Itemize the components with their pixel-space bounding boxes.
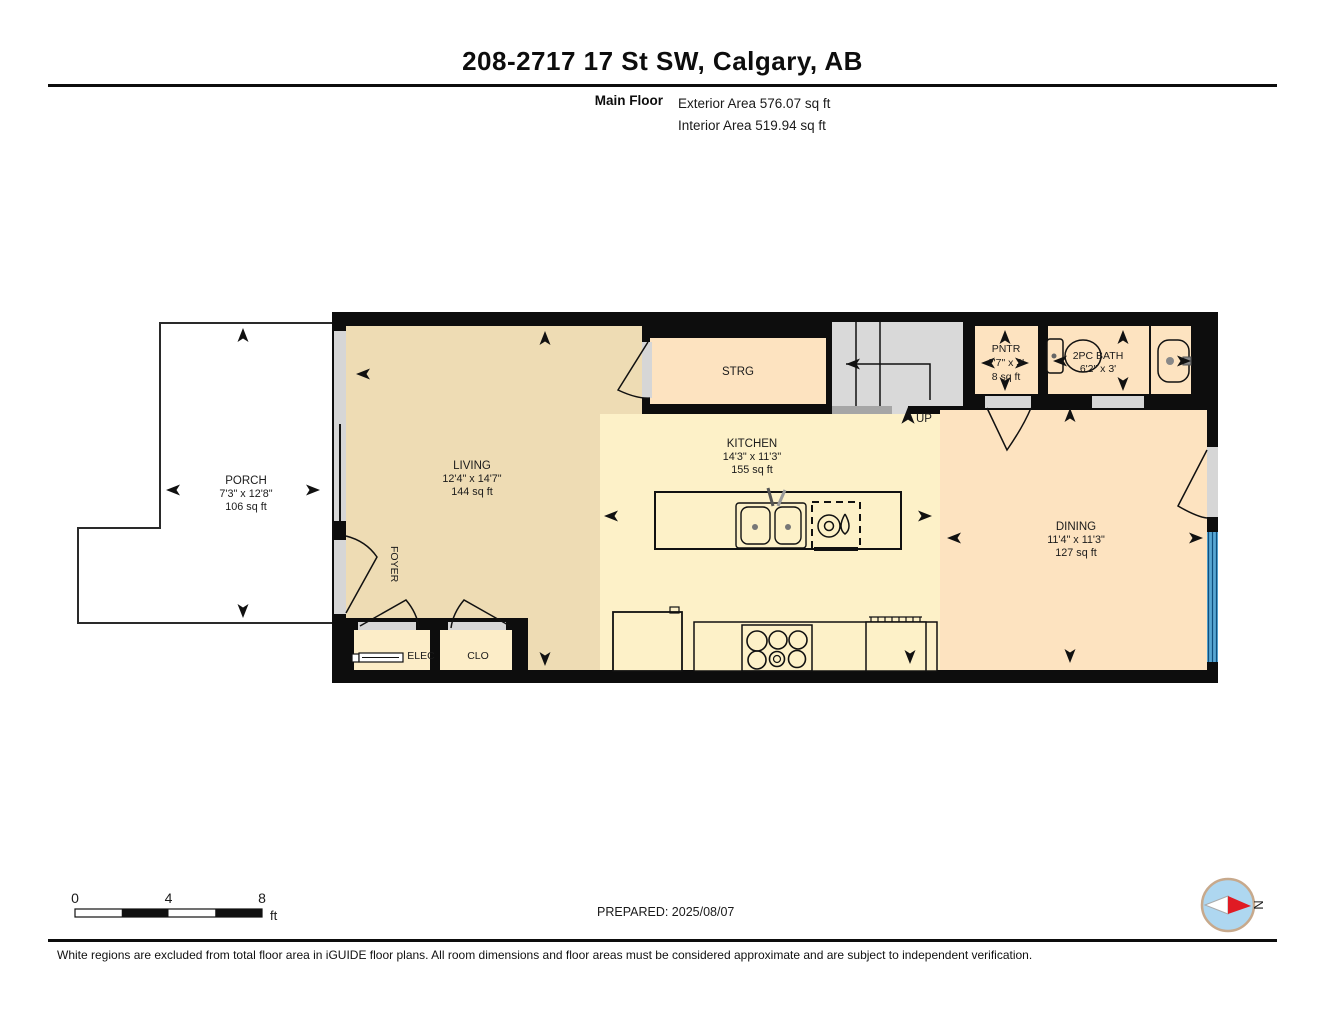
footer-divider bbox=[48, 939, 1277, 942]
pntr-label: PNTR bbox=[992, 343, 1021, 355]
living-dims: 12'4" x 14'7" bbox=[442, 473, 501, 485]
bath-dims: 6'2" x 3' bbox=[1080, 363, 1116, 375]
strg-label: STRG bbox=[722, 366, 754, 378]
porch-label: PORCH bbox=[225, 475, 267, 487]
porch-outline bbox=[78, 323, 334, 623]
dining-area: 127 sq ft bbox=[1055, 547, 1096, 559]
living-area: 144 sq ft bbox=[451, 486, 492, 498]
kitchen-area: 155 sq ft bbox=[731, 464, 772, 476]
foyer-label: FOYER bbox=[388, 546, 400, 583]
dining-label: DINING bbox=[1056, 521, 1096, 533]
scale-bar: 0 4 8 ft bbox=[71, 890, 278, 923]
wall-oven-icon bbox=[866, 617, 926, 671]
electrical-panel-icon bbox=[352, 653, 403, 662]
disclaimer-text: White regions are excluded from total fl… bbox=[57, 948, 1032, 962]
compass-north-label: N bbox=[1251, 900, 1266, 909]
stairs-up-label: UP bbox=[916, 413, 932, 425]
living-label: LIVING bbox=[453, 460, 491, 472]
kitchen-island bbox=[655, 488, 901, 551]
pntr-area: 8 sq ft bbox=[992, 371, 1021, 383]
floor-plan-svg: PORCH 7'3" x 12'8" 106 sq ft LIVING 12'4… bbox=[0, 0, 1325, 1024]
fridge-icon bbox=[613, 607, 682, 671]
elec-label: ELEC bbox=[407, 650, 435, 662]
dining-window bbox=[1207, 532, 1218, 662]
compass-icon: N bbox=[1202, 879, 1266, 931]
dining-dims: 11'4" x 11'3" bbox=[1047, 534, 1105, 546]
porch-dims: 7'3" x 12'8" bbox=[219, 488, 272, 500]
scale-tick-4: 4 bbox=[165, 890, 173, 906]
floor-plan-page: 208-2717 17 St SW, Calgary, AB Main Floo… bbox=[0, 0, 1325, 1024]
kitchen-dims: 14'3" x 11'3" bbox=[723, 451, 782, 463]
prepared-date: PREPARED: 2025/08/07 bbox=[597, 905, 734, 919]
kitchen-label: KITCHEN bbox=[727, 438, 777, 450]
porch-area: 106 sq ft bbox=[225, 501, 266, 513]
scale-unit: ft bbox=[270, 908, 278, 923]
pntr-dims: 2'7" x 3' bbox=[988, 357, 1024, 369]
scale-tick-8: 8 bbox=[258, 890, 266, 906]
clo-label: CLO bbox=[467, 650, 489, 662]
scale-tick-0: 0 bbox=[71, 890, 79, 906]
bath-label: 2PC BATH bbox=[1073, 350, 1124, 362]
